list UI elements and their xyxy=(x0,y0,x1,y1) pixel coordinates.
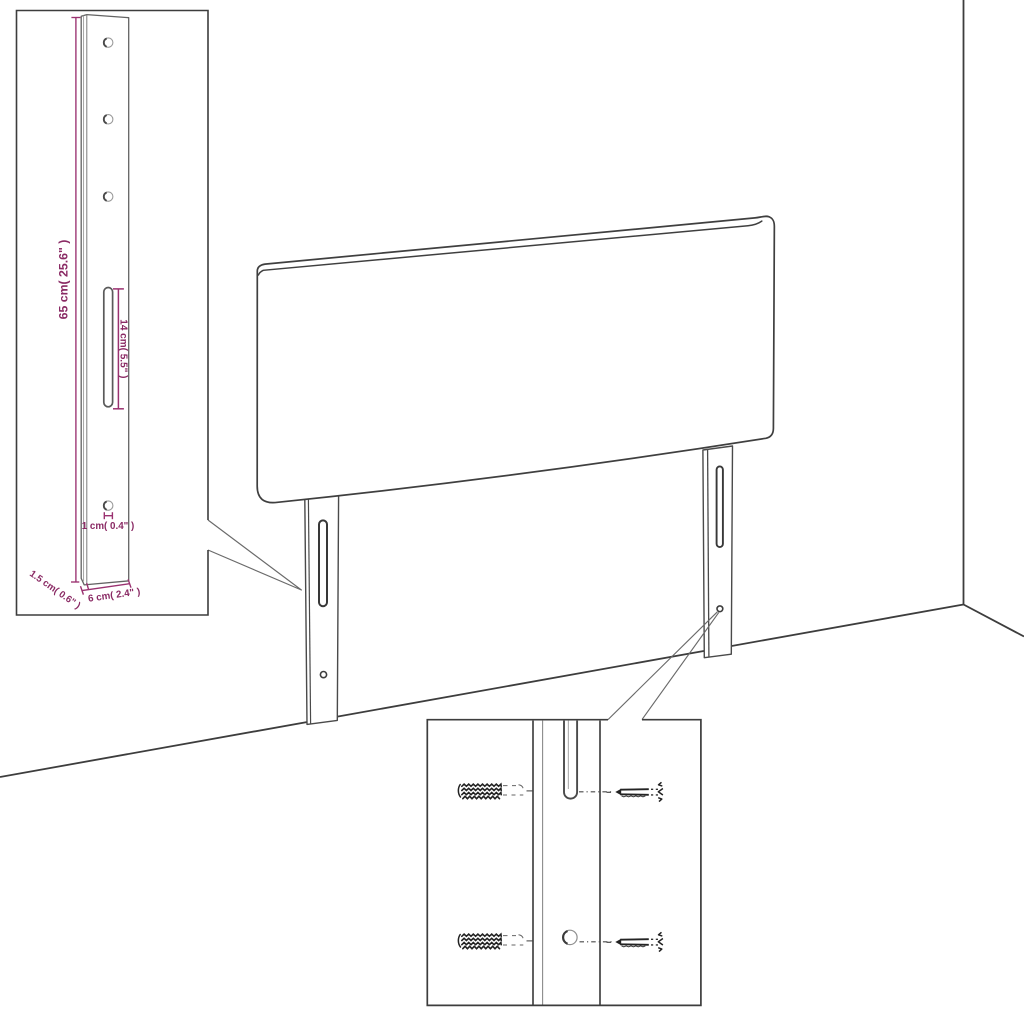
svg-text:1 cm( 0.4" ): 1 cm( 0.4" ) xyxy=(82,521,135,532)
svg-text:1.5 cm( 0.6" ): 1.5 cm( 0.6" ) xyxy=(27,568,82,611)
svg-text:14 cm( 5.5" ): 14 cm( 5.5" ) xyxy=(118,319,129,378)
svg-text:65 cm( 25.6" ): 65 cm( 25.6" ) xyxy=(56,240,70,320)
